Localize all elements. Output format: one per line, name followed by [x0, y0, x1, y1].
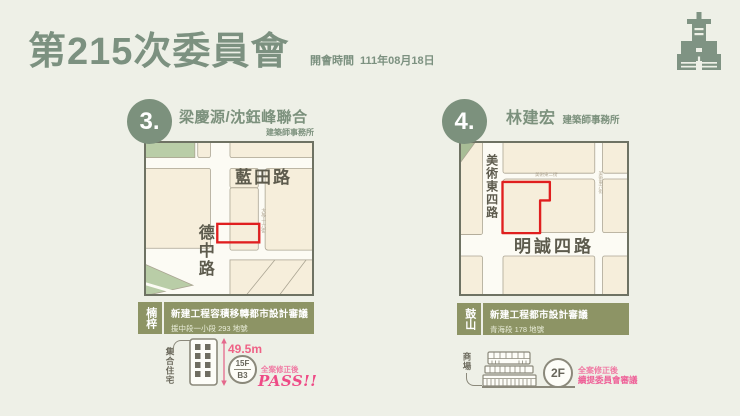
case-3-number: 3.	[139, 108, 159, 136]
case-3-floors-below: B3	[237, 372, 247, 380]
case-4-floors-above: 2F	[551, 367, 565, 379]
meeting-info: 開會時間111年08月18日	[310, 52, 441, 68]
case-3-floors-above: 15F	[236, 360, 250, 368]
case-4-floors-badge: 2F	[543, 358, 573, 388]
case-4-road-label-bottom: 明誠四路	[514, 238, 594, 256]
meeting-date: 111年08月18日	[360, 55, 435, 67]
case-4-firm-row: 林建宏 建築師事務所	[506, 104, 620, 128]
case-3-site-map: 藍田路 德中路 大學十六街	[144, 141, 314, 296]
case-3-building-use: 集合住宅	[164, 347, 176, 385]
mall-building-icon	[481, 351, 538, 394]
apartment-building-icon	[189, 338, 218, 391]
slide: 第215次委員會 開會時間111年08月18日	[0, 0, 740, 416]
case-4-road-label-left: 美術東四路	[485, 154, 498, 219]
case-4-result: 續提委員會審議	[578, 374, 638, 386]
case-4-firm-name: 林建宏	[506, 104, 556, 128]
case-3-review-title: 新建工程容積移轉都市設計審議	[171, 306, 307, 320]
case-3-firm-suffix: 建築師事務所	[179, 127, 314, 138]
case-3-lane-label: 大學十六街	[260, 208, 265, 233]
case-3-height-label: 49.5m	[228, 342, 262, 356]
case-4-building-use: 商場	[461, 352, 473, 371]
case-4-review-title: 新建工程都市設計審議	[490, 307, 622, 321]
case-3-result: PASS!!	[258, 372, 317, 390]
case-3-review-box: 新建工程容積移轉都市設計審議 援中段一小段 293 地號	[164, 302, 314, 334]
case-3-site-lot: 援中段一小段 293 地號	[171, 323, 307, 334]
case-3-district-tag: 楠梓	[138, 302, 162, 334]
case-4-review-box: 新建工程都市設計審議 青海段 178 地號	[483, 303, 629, 335]
case-3-map-shapes	[146, 143, 312, 294]
case-4-number-badge: 4.	[442, 99, 487, 144]
case-4-site-map: 美術東四路 明誠四路 美術東二街 美術東六街	[459, 141, 629, 296]
meeting-time-label: 開會時間	[310, 55, 354, 67]
tower-building-icon	[677, 12, 721, 81]
case-4-firm-suffix: 建築師事務所	[563, 112, 620, 126]
case-4-number: 4.	[454, 108, 474, 136]
case-3-firm-name: 梁慶源/沈鈺峰聯合	[179, 106, 308, 127]
page-title: 第215次委員會	[28, 20, 289, 75]
case-4-bracket-line	[466, 373, 482, 386]
case-4-district-tag: 鼓山	[457, 303, 481, 335]
case-3-floors-badge: 15F B3	[228, 355, 257, 384]
case-3-road-label-left: 德中路	[195, 224, 212, 278]
case-4-lane-label-top: 美術東二街	[535, 173, 558, 178]
case-3-road-label-top: 藍田路	[235, 169, 292, 187]
case-3-bracket-line	[173, 340, 190, 352]
case-4-lane-label-right: 美術東六街	[598, 171, 603, 194]
case-4-site-lot: 青海段 178 地號	[490, 324, 622, 335]
case-3-number-badge: 3.	[127, 99, 172, 144]
floors-divider	[234, 369, 251, 370]
